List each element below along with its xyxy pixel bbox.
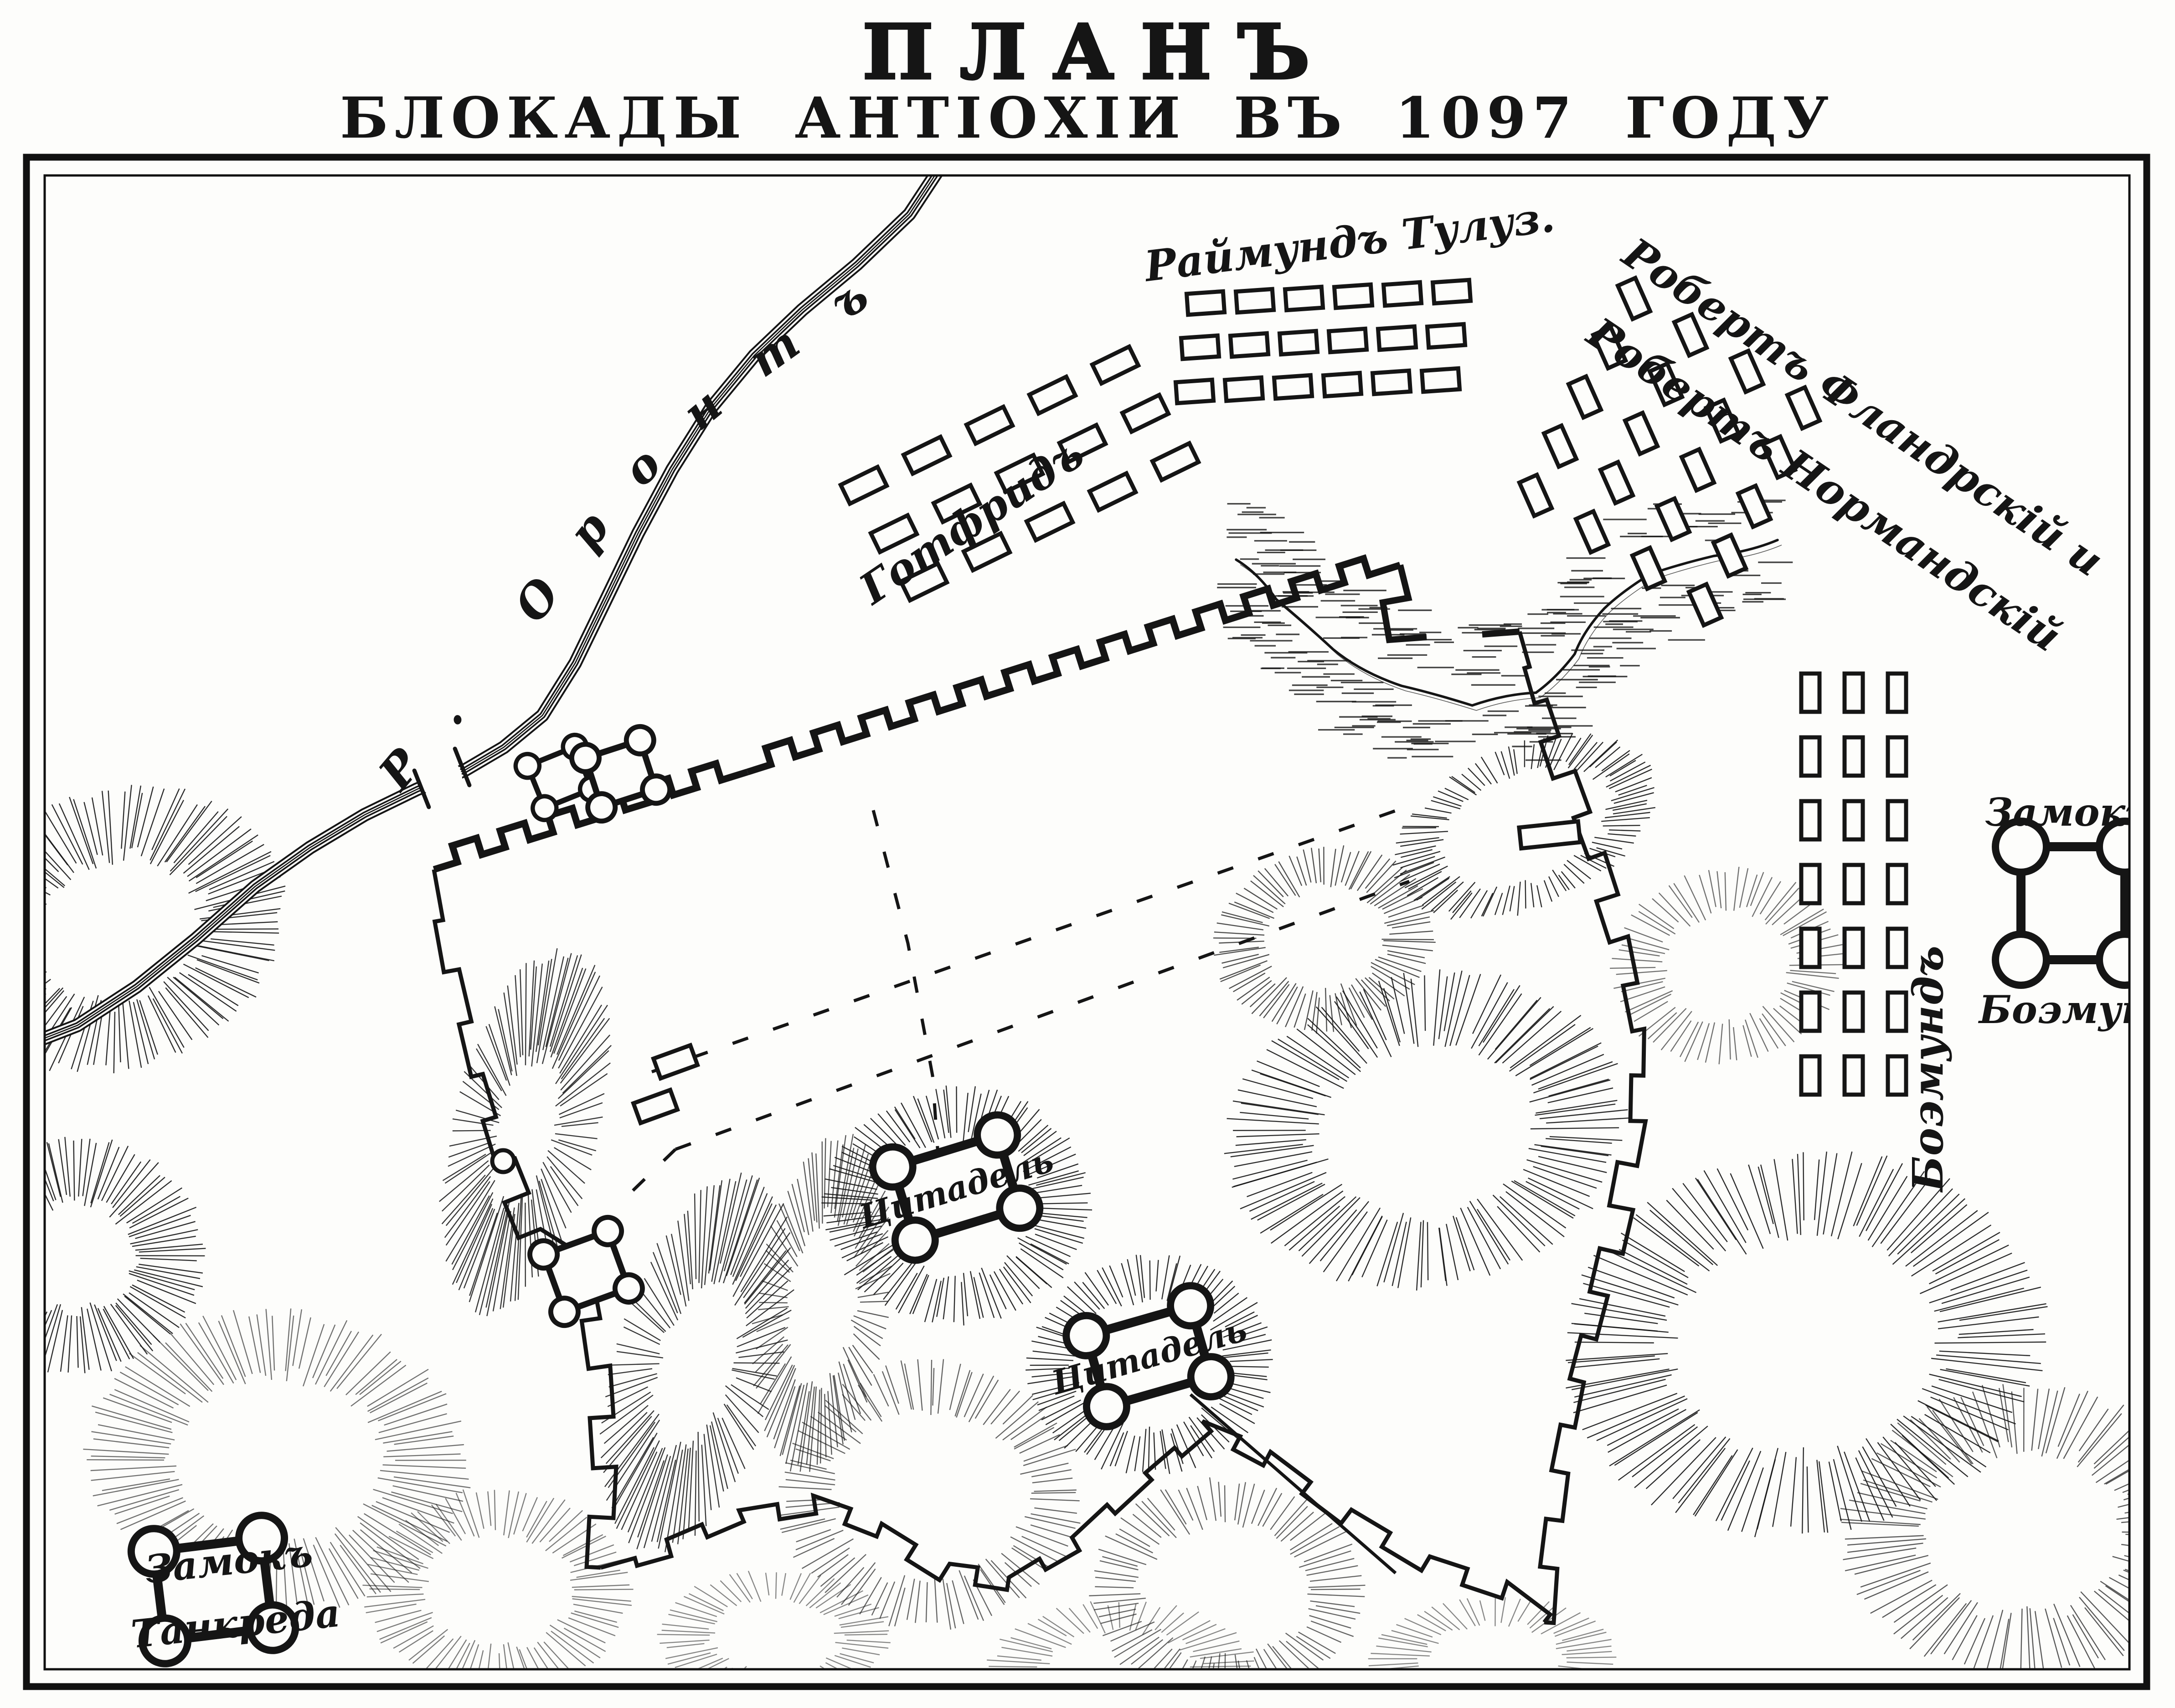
- tent: [1230, 333, 1268, 356]
- tent: [1186, 291, 1224, 314]
- tent: [1845, 674, 1863, 712]
- tent: [1329, 329, 1366, 352]
- tent: [1152, 443, 1198, 480]
- tent: [1383, 282, 1421, 305]
- city-building-1: [654, 1045, 698, 1079]
- tent: [1372, 370, 1410, 394]
- tent: [1601, 462, 1633, 503]
- map-subtitle: БЛОКАДЫ АНТІОХІИ ВЪ 1097 ГОДУ: [340, 85, 1835, 151]
- tent: [1334, 284, 1372, 308]
- map-sheet: ПЛАНЪ БЛОКАДЫ АНТІОХІИ ВЪ 1097 ГОДУ Р. О…: [0, 0, 2175, 1708]
- tent: [1122, 395, 1168, 432]
- tent: [1175, 380, 1213, 403]
- tent: [1274, 375, 1312, 398]
- tent: [1378, 326, 1416, 350]
- map-title: ПЛАНЪ: [862, 8, 1336, 96]
- tent: [1323, 373, 1361, 396]
- hill-hachure: [1840, 1384, 2175, 1677]
- tent: [1089, 473, 1135, 510]
- tent: [1520, 475, 1552, 516]
- tent: [1738, 486, 1771, 527]
- siege-of-antioch-map: ПЛАНЪ БЛОКАДЫ АНТІОХІИ ВЪ 1097 ГОДУ Р. О…: [0, 0, 2175, 1708]
- road-long-lower: [675, 881, 1409, 1149]
- tent: [1845, 1056, 1863, 1095]
- label-raymond: Раймундъ Тулуз.: [1141, 192, 1557, 292]
- tent: [903, 437, 949, 474]
- tent: [1422, 368, 1459, 391]
- tent: [1801, 801, 1819, 839]
- tent: [1845, 801, 1863, 839]
- tent: [1845, 865, 1863, 903]
- tent: [1801, 737, 1819, 776]
- northeast-gate-segment: [1482, 632, 1520, 634]
- tent: [1427, 324, 1465, 347]
- buildings: [634, 821, 1580, 1123]
- crusader-camps: [840, 278, 1906, 1095]
- tent: [1181, 335, 1219, 359]
- tent: [1801, 674, 1819, 712]
- west-wall-tower: [492, 1150, 514, 1172]
- label-bohemond-castle-top: Замокъ: [1985, 790, 2154, 835]
- hill-hachure: [0, 785, 285, 1073]
- river-label-path: [392, 255, 953, 803]
- tent: [1092, 347, 1138, 384]
- tent: [1682, 449, 1714, 490]
- tent: [1714, 535, 1746, 576]
- hill-hachure: [987, 1601, 1255, 1708]
- hill-hachure: [657, 1571, 891, 1703]
- plateau-building: [1519, 821, 1580, 848]
- tent: [1569, 376, 1601, 417]
- tent: [1801, 929, 1819, 967]
- camp-raymond: [1175, 280, 1470, 403]
- tent: [1544, 426, 1577, 467]
- tent: [1801, 993, 1819, 1031]
- tent: [1689, 584, 1721, 625]
- tent: [1888, 865, 1906, 903]
- citadel-south-wall-link: [1191, 1394, 1396, 1573]
- tent: [1657, 499, 1690, 540]
- tent: [1845, 737, 1863, 776]
- tent: [1888, 674, 1906, 712]
- tent: [1029, 377, 1075, 414]
- city-building-2: [634, 1090, 678, 1123]
- tent: [1888, 737, 1906, 776]
- map-content: Р. Оронтъ Раймундъ Тулуз. Готфридъ Робер…: [0, 154, 2175, 1708]
- bohemond-castle: [1995, 821, 2150, 985]
- road-short-southwest: [616, 1149, 675, 1207]
- tent: [840, 467, 886, 504]
- tent: [1801, 865, 1819, 903]
- tent: [1845, 929, 1863, 967]
- tent: [1285, 287, 1323, 310]
- crenellated-wall: [747, 559, 1400, 772]
- tent: [1888, 801, 1906, 839]
- tent: [1801, 1056, 1819, 1095]
- hill-hachure: [0, 1137, 206, 1373]
- hill-hachure: [752, 1134, 894, 1471]
- hill-hachure: [1566, 1152, 2047, 1537]
- tent: [1576, 511, 1608, 552]
- tent: [1279, 331, 1317, 354]
- tent: [1433, 280, 1470, 303]
- orontes-river: [28, 154, 949, 1044]
- road-long-upper: [652, 808, 1405, 1072]
- tent: [1625, 413, 1658, 454]
- hill-hachure: [1368, 1597, 1617, 1708]
- label-bohemond-camp: Боэмундъ: [1903, 946, 1953, 1193]
- antioch-city-walls: [434, 559, 1645, 1623]
- tent: [966, 407, 1012, 444]
- tent: [1225, 377, 1263, 401]
- camp-bohemond: [1801, 674, 1906, 1095]
- tent: [1845, 993, 1863, 1031]
- hill-hachure: [1224, 969, 1629, 1291]
- tent: [1236, 289, 1273, 312]
